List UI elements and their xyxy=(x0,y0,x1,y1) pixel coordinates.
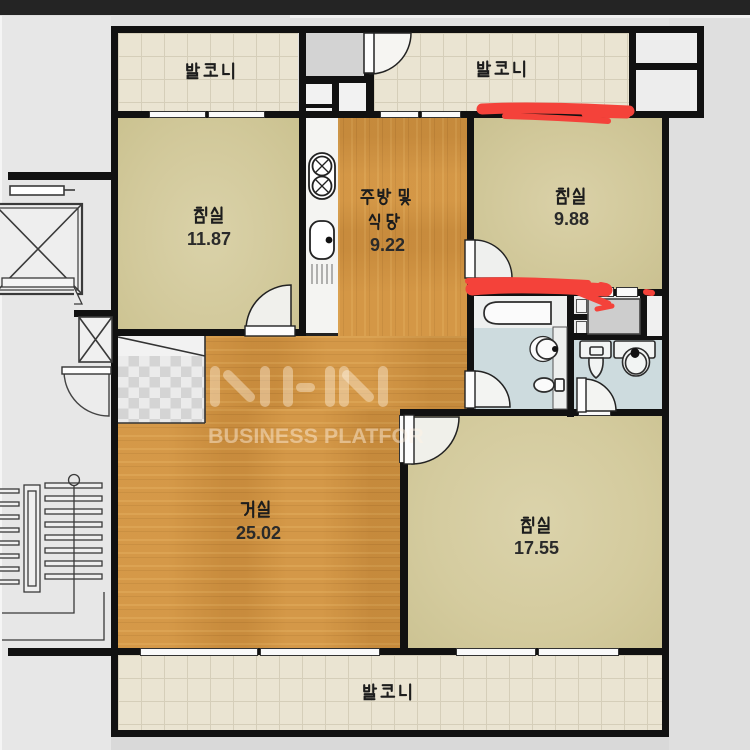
svg-text:BUSINESS PLATFOR: BUSINESS PLATFOR xyxy=(208,424,424,448)
